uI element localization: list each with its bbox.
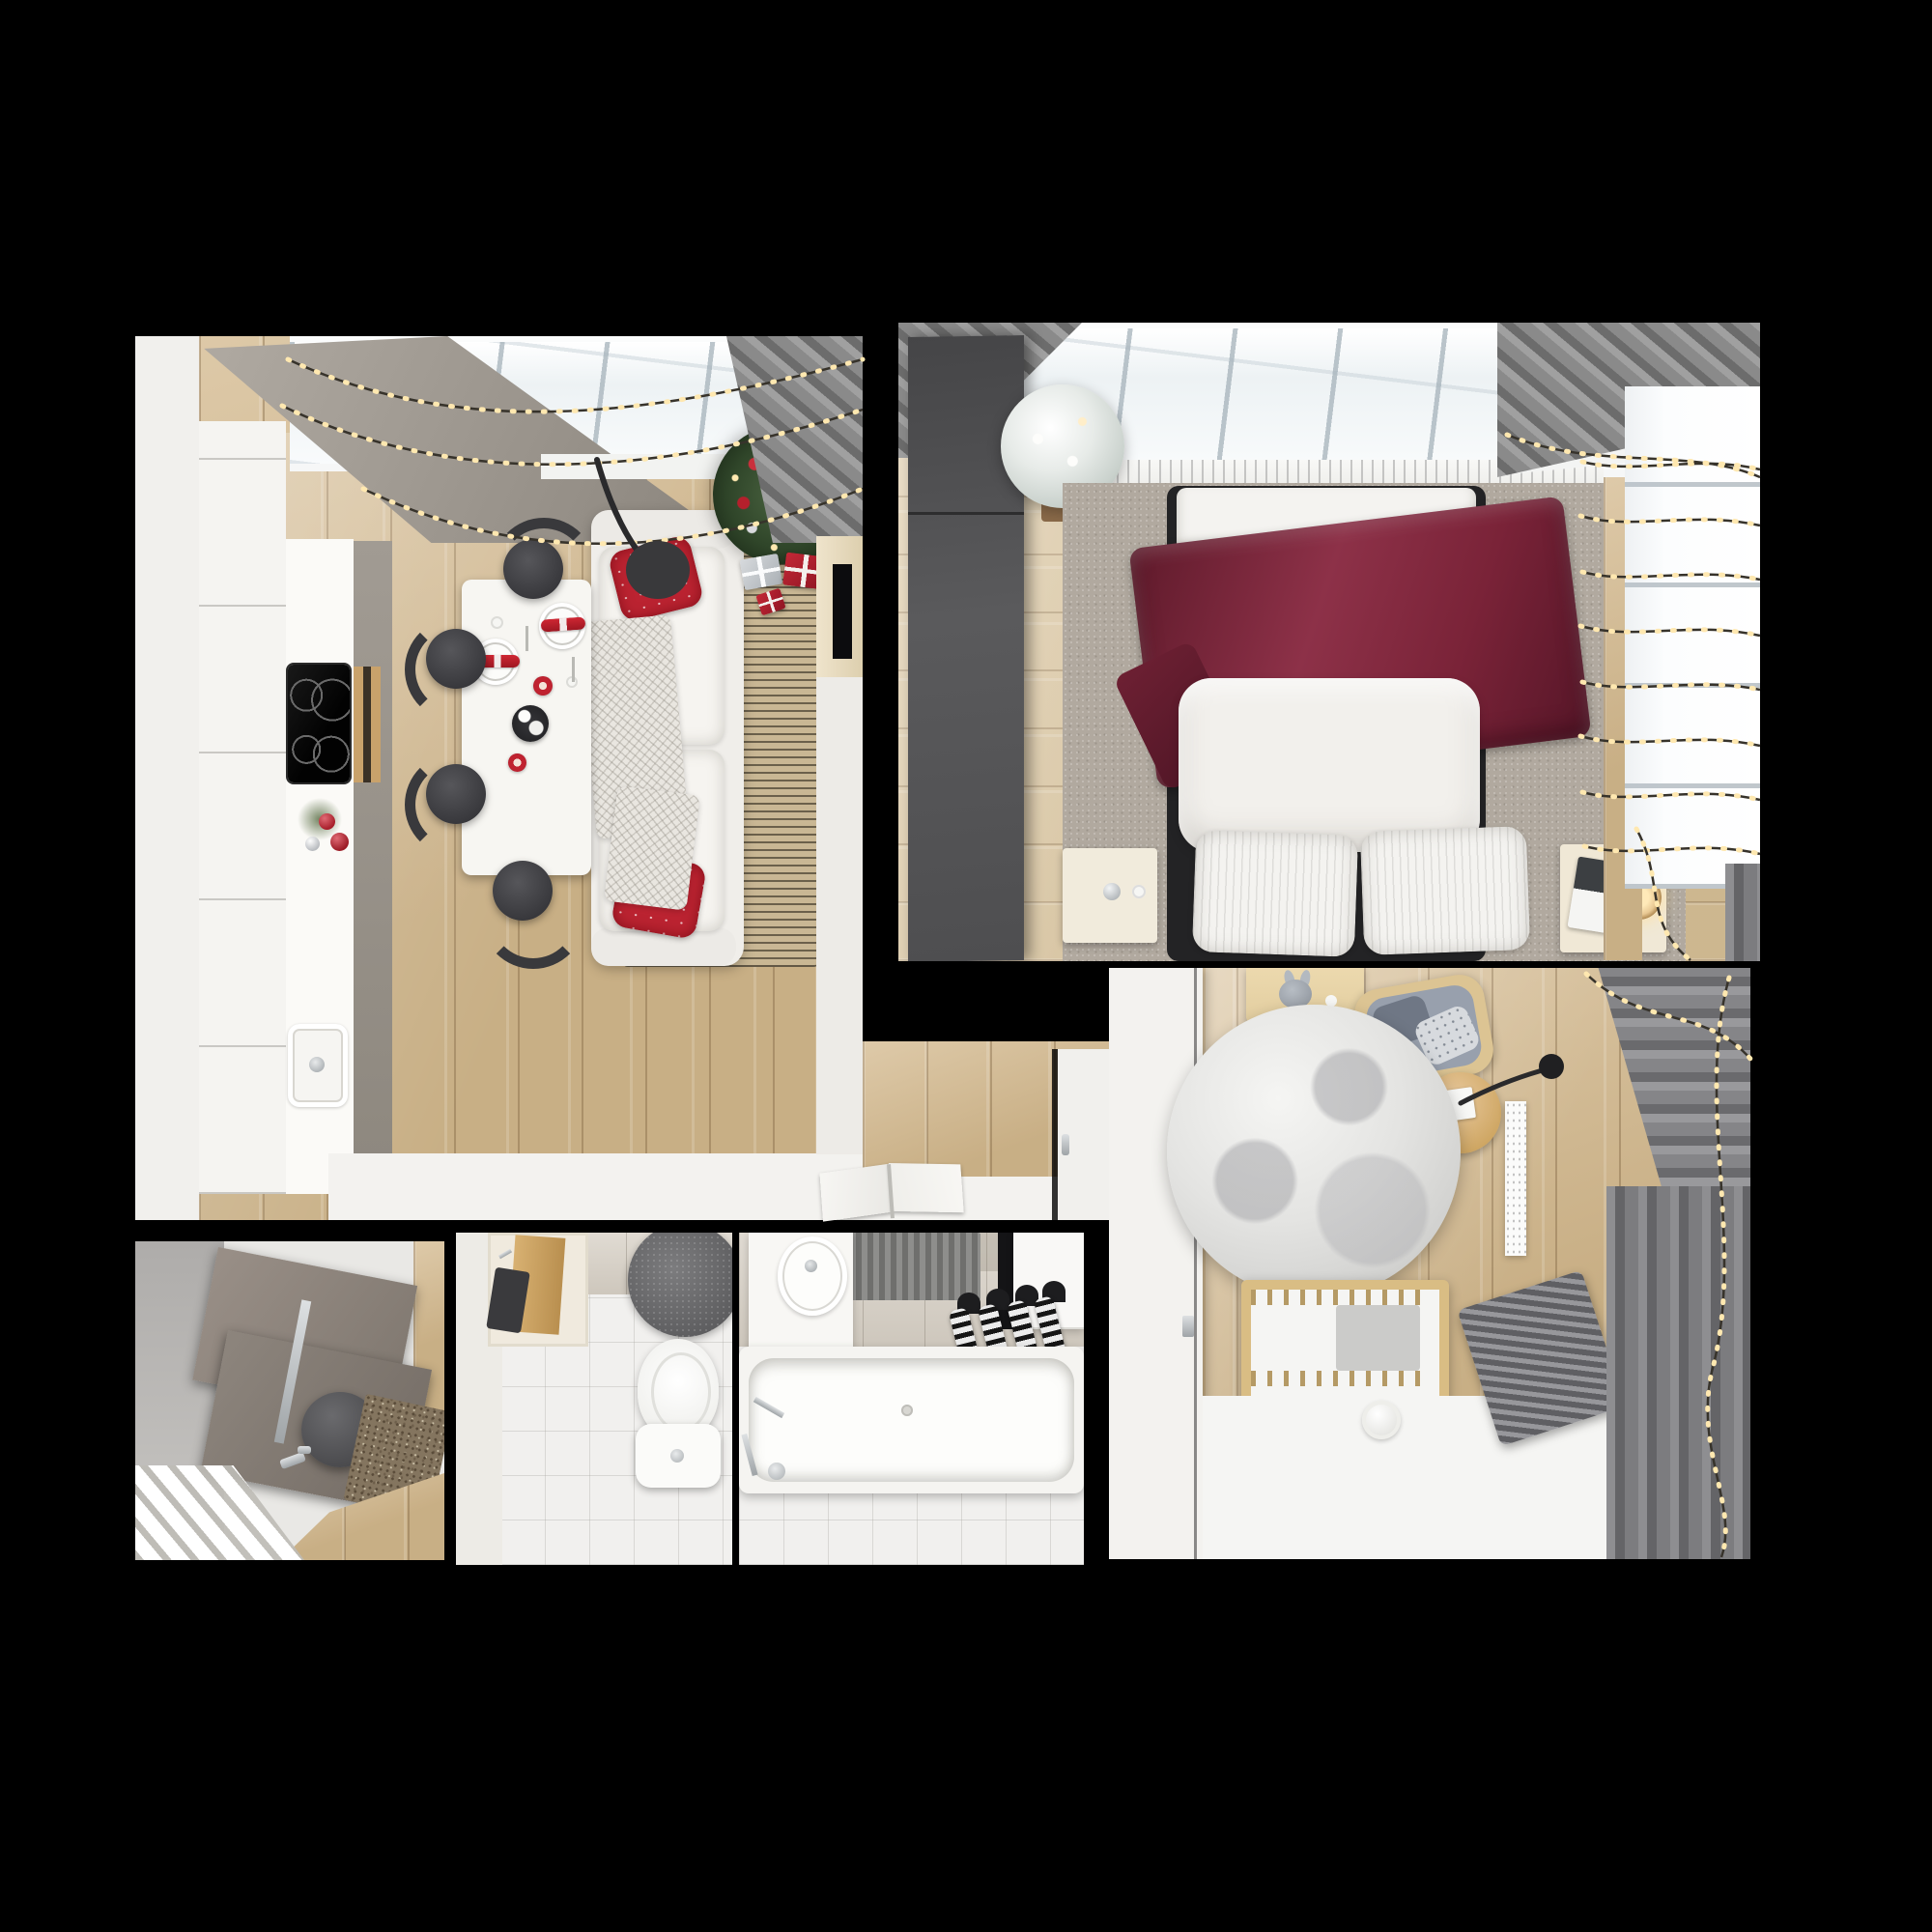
sink-drain [805,1260,817,1272]
sink-drain [309,1057,325,1072]
door-handle [1062,1134,1069,1155]
knit-throw-drape [604,785,700,911]
nursery-curtain-bottom [1606,1186,1750,1559]
dining-chair [499,531,567,599]
red-bauble [330,833,349,851]
bedroom-curtain-bottomright [1725,864,1760,961]
chair-seat [493,861,553,921]
book-page-left [820,1164,893,1222]
round-rug [1167,1005,1461,1298]
dining-chair [418,760,486,828]
wardrobe-door-seam [1194,968,1197,1559]
red-bauble [319,813,335,830]
room-living-kitchen [135,336,863,1220]
room-wc [456,1233,732,1565]
chair-seat [503,539,563,599]
open-book [819,1159,968,1223]
tub-drain [901,1405,913,1416]
room-bedroom [898,323,1760,961]
room-bathroom [739,1233,1084,1565]
shower-head [768,1463,785,1480]
white-duvet [1179,678,1480,852]
red-candle [533,676,553,696]
gift-box-silver [740,554,783,590]
living-bottom-wall [328,1153,863,1220]
chair-seat [426,764,486,824]
white-radiator [1505,1101,1526,1256]
dining-chair [488,865,557,934]
room-nursery [1109,968,1750,1559]
serving-tray [512,705,549,742]
induction-cooktop [288,665,350,782]
flush-button [670,1449,684,1463]
door-hinge [1182,1316,1194,1337]
wardrobe-seam [908,512,1024,515]
bathtub-basin [749,1358,1074,1482]
kitchen-gray-band [354,541,392,1164]
bed-pillow [1192,830,1358,957]
kitchen-tall-cabinets [199,421,286,1194]
cutlery [572,657,575,682]
bed-pillow [1360,826,1530,955]
crib-slats-top [1251,1290,1420,1305]
oval-sink [778,1236,847,1316]
dining-chair [418,625,486,693]
nursery-wardrobe [1109,968,1203,1559]
book-page-right [889,1163,964,1212]
tv-screen [833,564,852,659]
crib [1241,1280,1449,1415]
alarm-clock [1103,883,1121,900]
door-hardware [298,1446,311,1454]
chair-seat [426,629,486,689]
bedroom-window [1625,386,1760,889]
trinket [1132,885,1146,898]
gray-bath-mat [838,1233,980,1300]
small-dish [491,616,503,629]
cutlery [526,626,528,651]
crib-slats-bottom [1251,1371,1420,1386]
crib-blanket [1336,1305,1420,1371]
floorplan-stage [0,0,1932,1932]
humidifier [1362,1401,1401,1439]
room-entry [135,1241,444,1560]
media-cabinet-white [816,677,863,1154]
oven-handle [354,667,381,782]
silver-bauble [305,837,320,851]
red-candle [508,753,526,772]
living-left-wall [135,336,199,1220]
toilet-seat-line [651,1352,711,1432]
